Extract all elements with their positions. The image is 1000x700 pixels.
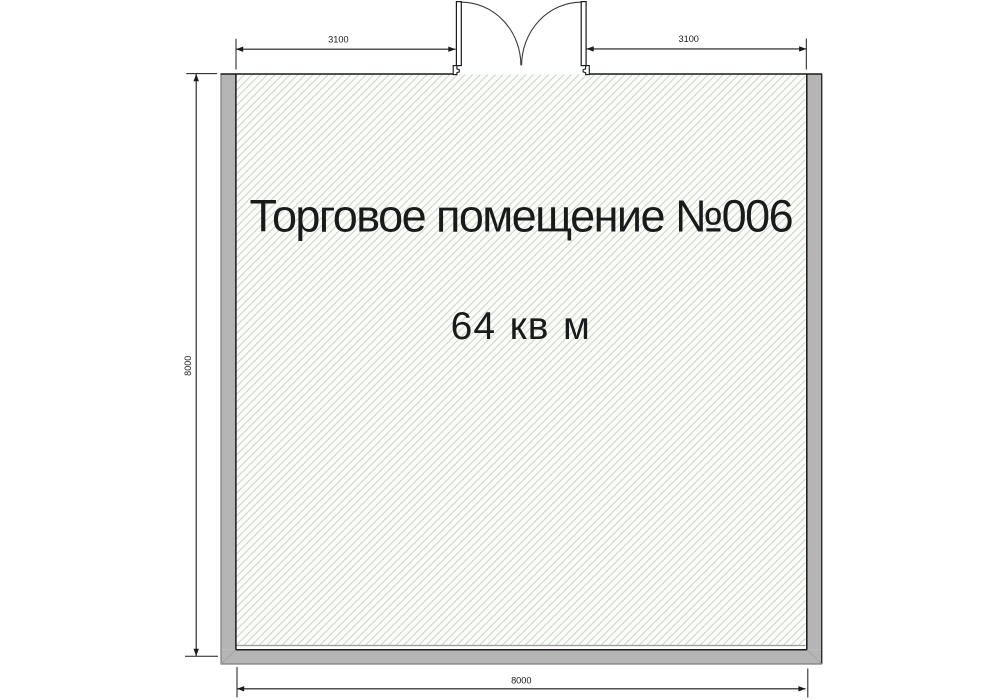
svg-text:3100: 3100 (678, 34, 698, 44)
svg-text:3100: 3100 (328, 34, 348, 44)
svg-text:Торговое помещение №006: Торговое помещение №006 (250, 190, 793, 241)
svg-text:64 кв м: 64 кв м (451, 305, 591, 348)
svg-text:8000: 8000 (511, 675, 531, 685)
svg-text:8000: 8000 (183, 356, 193, 376)
